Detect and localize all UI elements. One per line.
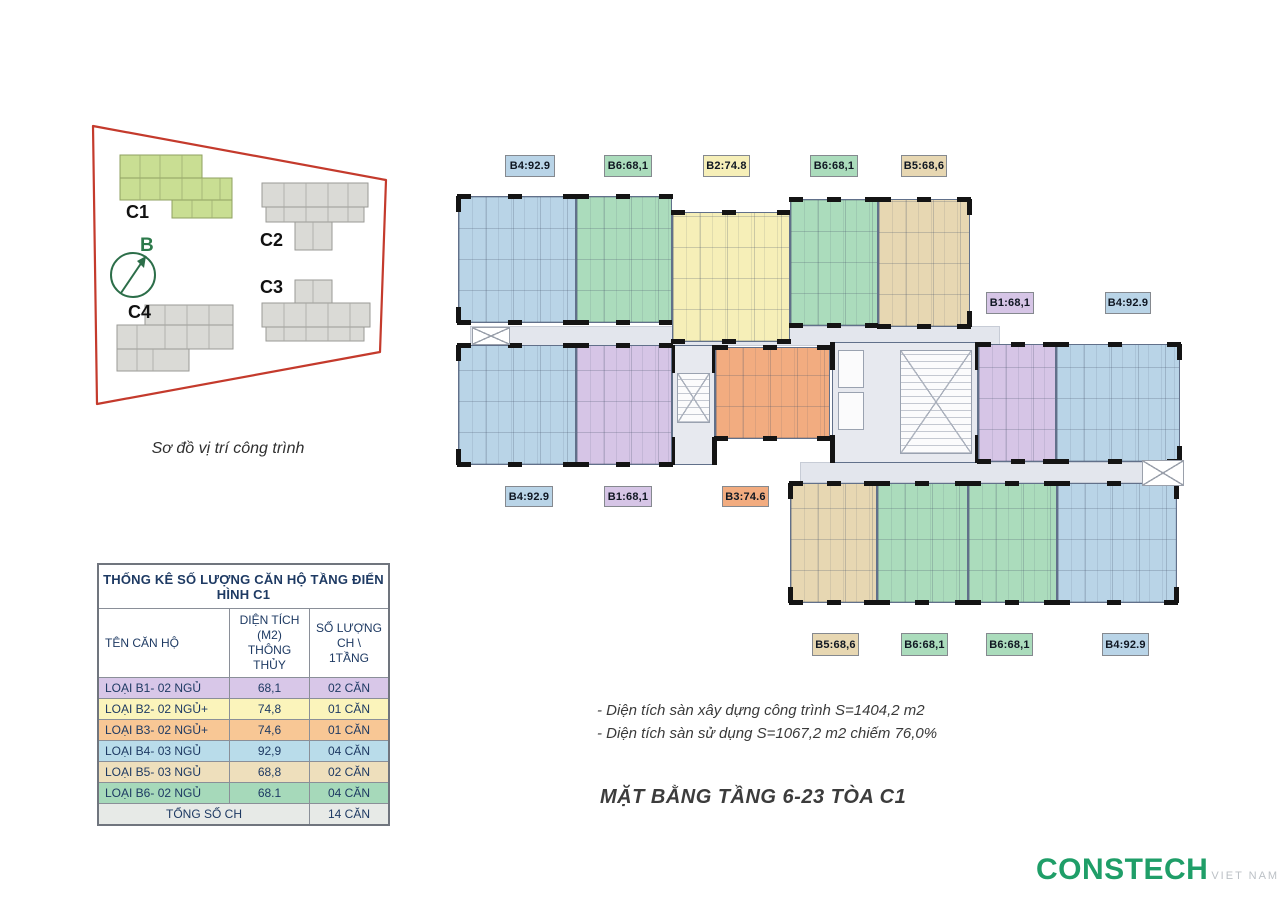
wall-tick	[659, 194, 673, 199]
wall-tick	[1108, 342, 1122, 347]
wall-tick	[1107, 481, 1121, 486]
wall-tick	[817, 436, 831, 441]
logo-subtitle: VIET NAM	[1211, 870, 1279, 882]
area-badge: B1:68,1	[986, 292, 1034, 314]
note-line-1: - Diện tích sàn xây dựng công trình S=14…	[597, 699, 937, 722]
wall-tick	[827, 481, 841, 486]
wall-tick	[967, 199, 972, 215]
area-badge: B4:92.9	[505, 155, 555, 177]
wall-tick	[659, 343, 673, 348]
wall-tick	[915, 600, 929, 605]
unit-B1	[576, 345, 672, 465]
wall-tick	[1056, 481, 1070, 486]
area-badge: B3:74.6	[722, 486, 769, 507]
wall-tick	[508, 320, 522, 325]
wall-tick	[1056, 600, 1070, 605]
wall-tick	[763, 345, 777, 350]
wall-tick	[1174, 587, 1179, 603]
wall-tick	[616, 343, 630, 348]
plan-title: MẶT BẰNG TẦNG 6-23 TÒA C1	[600, 786, 906, 809]
wall-tick	[722, 339, 736, 344]
area-badge: B4:92.9	[505, 486, 553, 507]
constech-logo: CONSTECH VIET NAM	[1036, 853, 1279, 887]
wall-tick	[1005, 600, 1019, 605]
area-badge: B5:68,6	[812, 633, 859, 656]
area-badge: B5:68,6	[901, 155, 947, 177]
wall-tick	[712, 437, 717, 465]
page: C1 C2 C3 C4 B Sơ đồ vị trí công trình TH…	[0, 0, 1280, 906]
wall-tick	[827, 197, 841, 202]
area-notes: - Diện tích sàn xây dựng công trình S=14…	[597, 699, 937, 745]
elevator	[838, 392, 864, 430]
unit-B4	[458, 345, 576, 465]
staircase	[677, 373, 710, 423]
area-badge: B6:68,1	[810, 155, 858, 177]
wall-tick	[616, 194, 630, 199]
wall-tick	[575, 320, 589, 325]
unit-B2	[672, 212, 790, 342]
unit-B4	[1057, 483, 1177, 603]
wall-tick	[575, 343, 589, 348]
wall-tick	[876, 481, 890, 486]
wall-tick	[789, 323, 803, 328]
area-badge: B6:68,1	[986, 633, 1033, 656]
wall-tick	[877, 324, 891, 329]
wall-tick	[575, 462, 589, 467]
wall-tick	[722, 210, 736, 215]
wall-tick	[456, 307, 461, 323]
wall-tick	[616, 462, 630, 467]
area-badge: B2:74.8	[703, 155, 750, 177]
wall-tick	[788, 587, 793, 603]
wall-tick	[671, 339, 685, 344]
wall-tick	[877, 197, 891, 202]
corridor	[800, 462, 1145, 483]
wall-tick	[1011, 459, 1025, 464]
wall-tick	[456, 196, 461, 212]
wall-tick	[714, 345, 728, 350]
wall-tick	[876, 600, 890, 605]
area-badge: B6:68,1	[604, 155, 652, 177]
logo-name: CONSTECH	[1036, 853, 1208, 887]
area-badge: B4:92.9	[1105, 292, 1151, 314]
unit-B6	[790, 199, 878, 326]
wall-tick	[616, 320, 630, 325]
void-marker	[1142, 460, 1184, 486]
wall-tick	[777, 210, 791, 215]
unit-B3	[715, 347, 830, 439]
area-badge: B1:68,1	[604, 486, 652, 507]
wall-tick	[508, 194, 522, 199]
wall-tick	[817, 345, 831, 350]
wall-tick	[714, 436, 728, 441]
wall-tick	[977, 459, 991, 464]
unit-B6	[877, 483, 968, 603]
note-line-2: - Diện tích sàn sử dụng S=1067,2 m2 chiế…	[597, 722, 937, 745]
staircase	[900, 350, 972, 454]
wall-tick	[1177, 344, 1182, 360]
unit-B1	[978, 344, 1056, 462]
area-badge: B4:92.9	[1102, 633, 1149, 656]
unit-B4	[458, 196, 576, 323]
wall-tick	[788, 483, 793, 499]
wall-tick	[456, 345, 461, 361]
wall-tick	[1055, 342, 1069, 347]
wall-tick	[659, 320, 673, 325]
void-marker	[472, 327, 510, 345]
wall-tick	[1055, 459, 1069, 464]
wall-tick	[659, 462, 673, 467]
unit-B5	[790, 483, 877, 603]
wall-tick	[789, 197, 803, 202]
wall-tick	[1107, 600, 1121, 605]
wall-tick	[763, 436, 777, 441]
wall-tick	[575, 194, 589, 199]
wall-tick	[1108, 459, 1122, 464]
elevator	[838, 350, 864, 388]
wall-tick	[827, 323, 841, 328]
unit-B6	[576, 196, 672, 323]
wall-tick	[917, 197, 931, 202]
unit-B5	[878, 199, 970, 327]
unit-B4	[1056, 344, 1180, 462]
wall-tick	[967, 600, 981, 605]
unit-B6	[968, 483, 1057, 603]
wall-tick	[915, 481, 929, 486]
wall-tick	[508, 462, 522, 467]
wall-tick	[827, 600, 841, 605]
wall-tick	[1011, 342, 1025, 347]
wall-tick	[508, 343, 522, 348]
area-badge: B6:68,1	[901, 633, 948, 656]
wall-tick	[671, 210, 685, 215]
wall-tick	[777, 339, 791, 344]
wall-tick	[456, 449, 461, 465]
wall-tick	[1005, 481, 1019, 486]
floorplan: B4:92.9B6:68,1B2:74.8B6:68,1B5:68,6B1:68…	[0, 0, 1280, 906]
wall-tick	[967, 311, 972, 327]
wall-tick	[977, 342, 991, 347]
wall-tick	[967, 481, 981, 486]
wall-tick	[917, 324, 931, 329]
